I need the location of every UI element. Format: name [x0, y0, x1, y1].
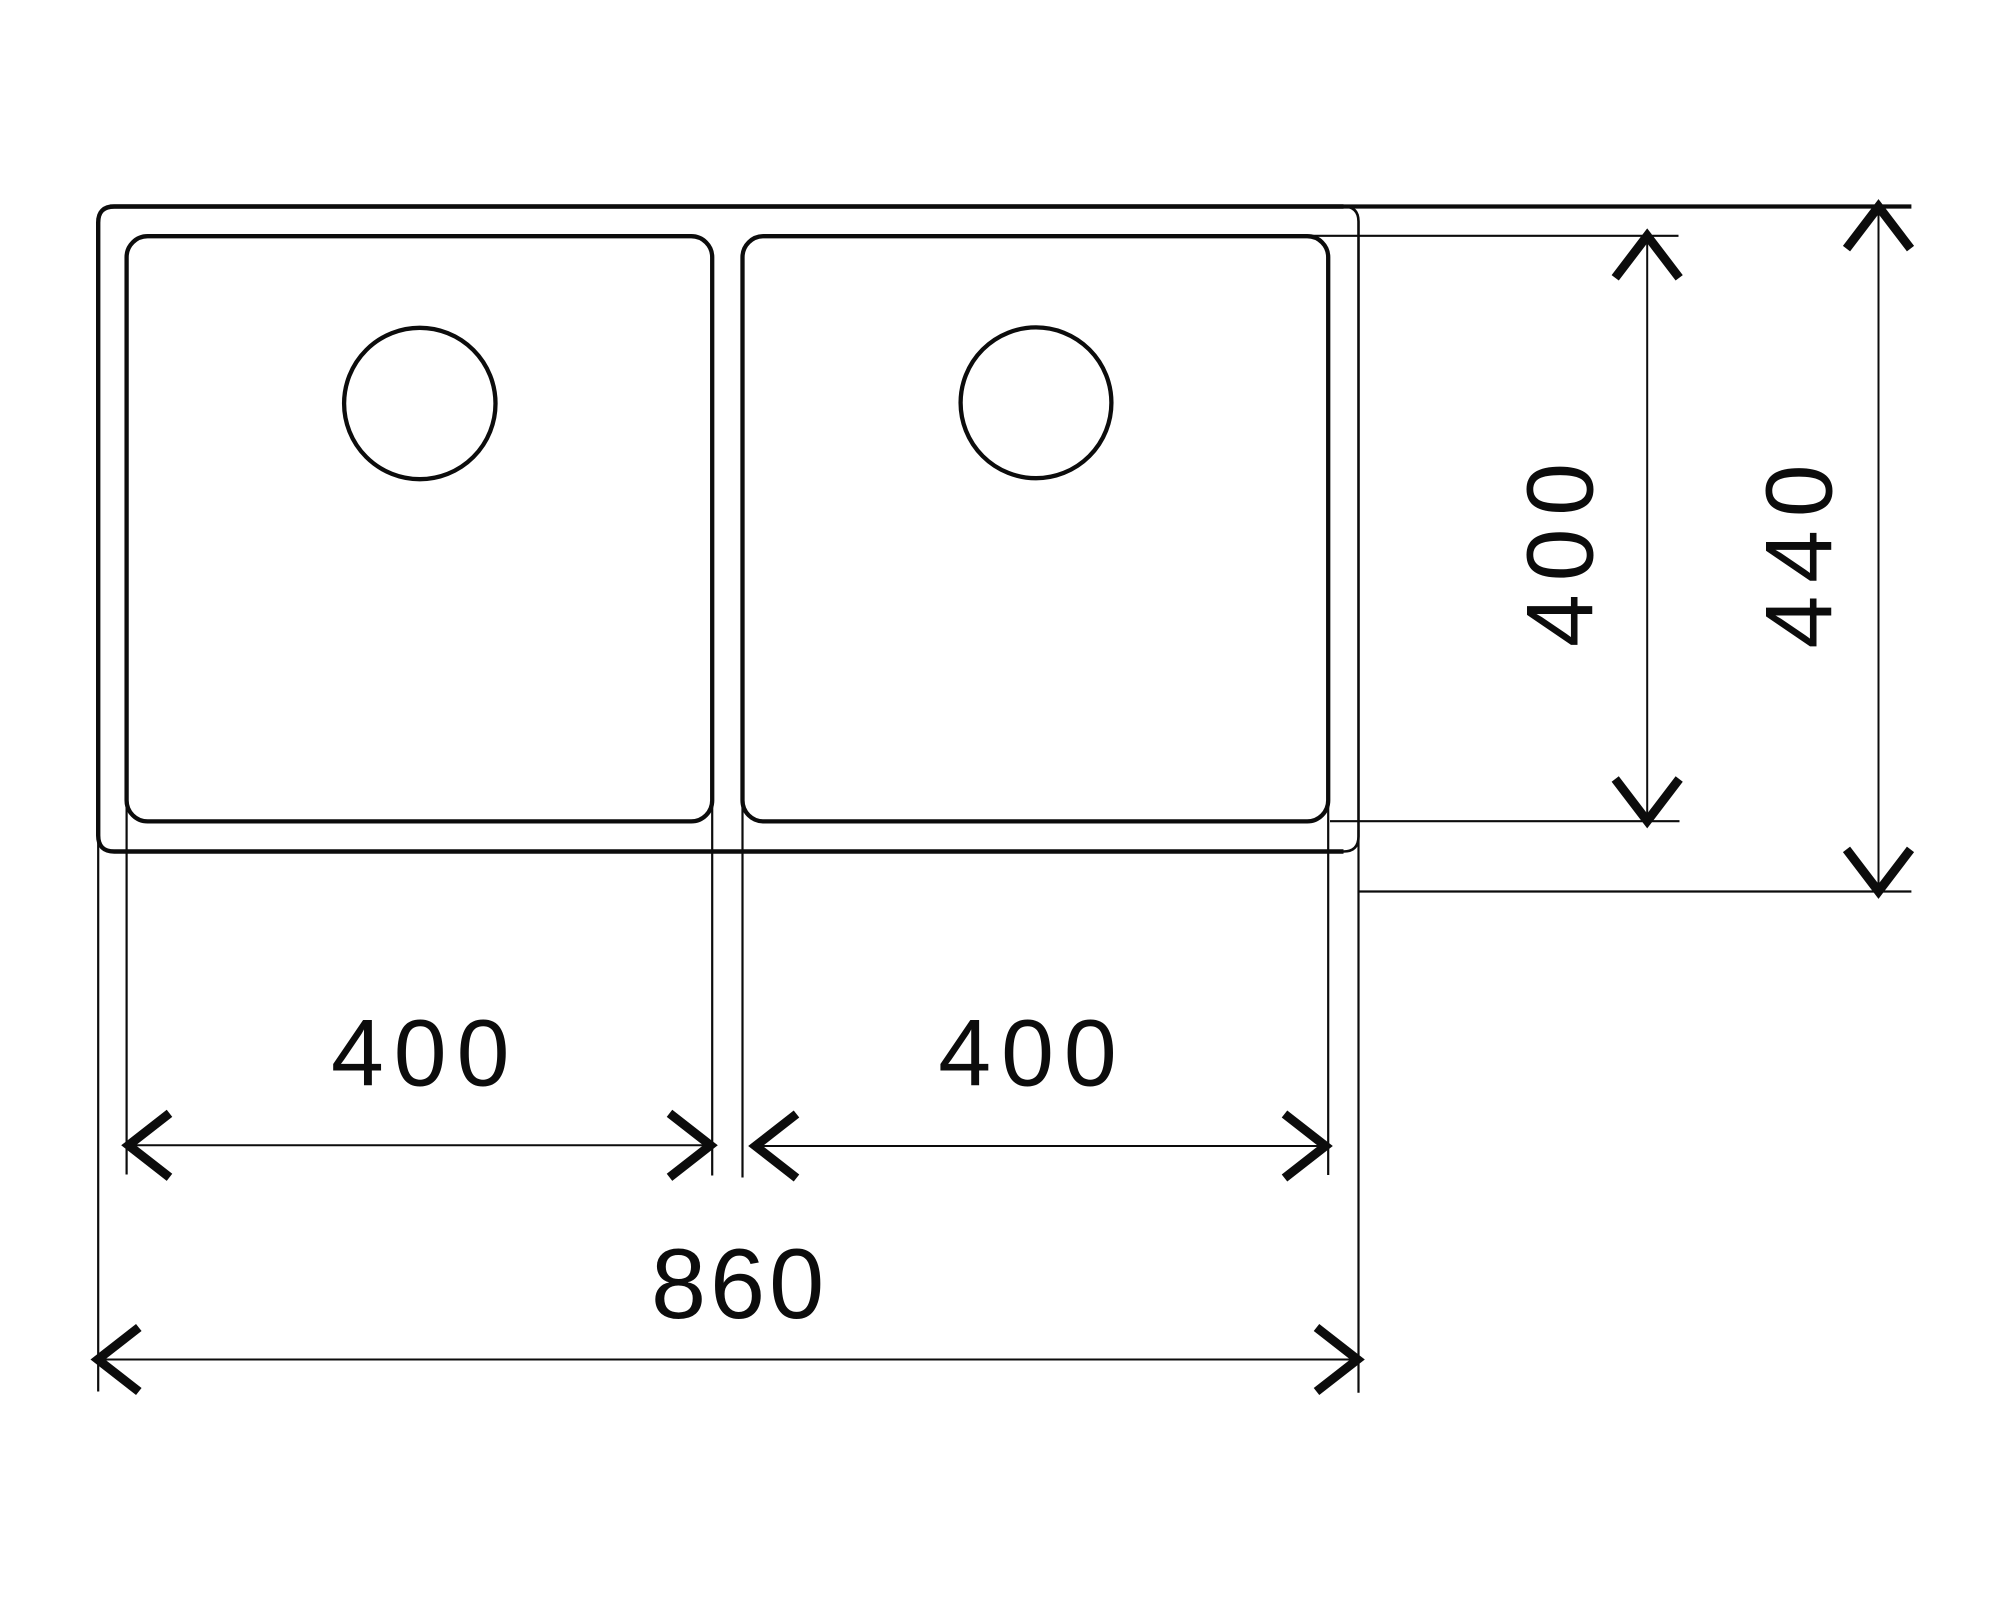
svg-text:400: 400: [1508, 450, 1614, 647]
svg-text:400: 400: [938, 1001, 1127, 1107]
svg-text:440: 440: [1747, 452, 1853, 649]
svg-text:400: 400: [331, 1001, 520, 1107]
svg-text:860: 860: [651, 1228, 828, 1339]
